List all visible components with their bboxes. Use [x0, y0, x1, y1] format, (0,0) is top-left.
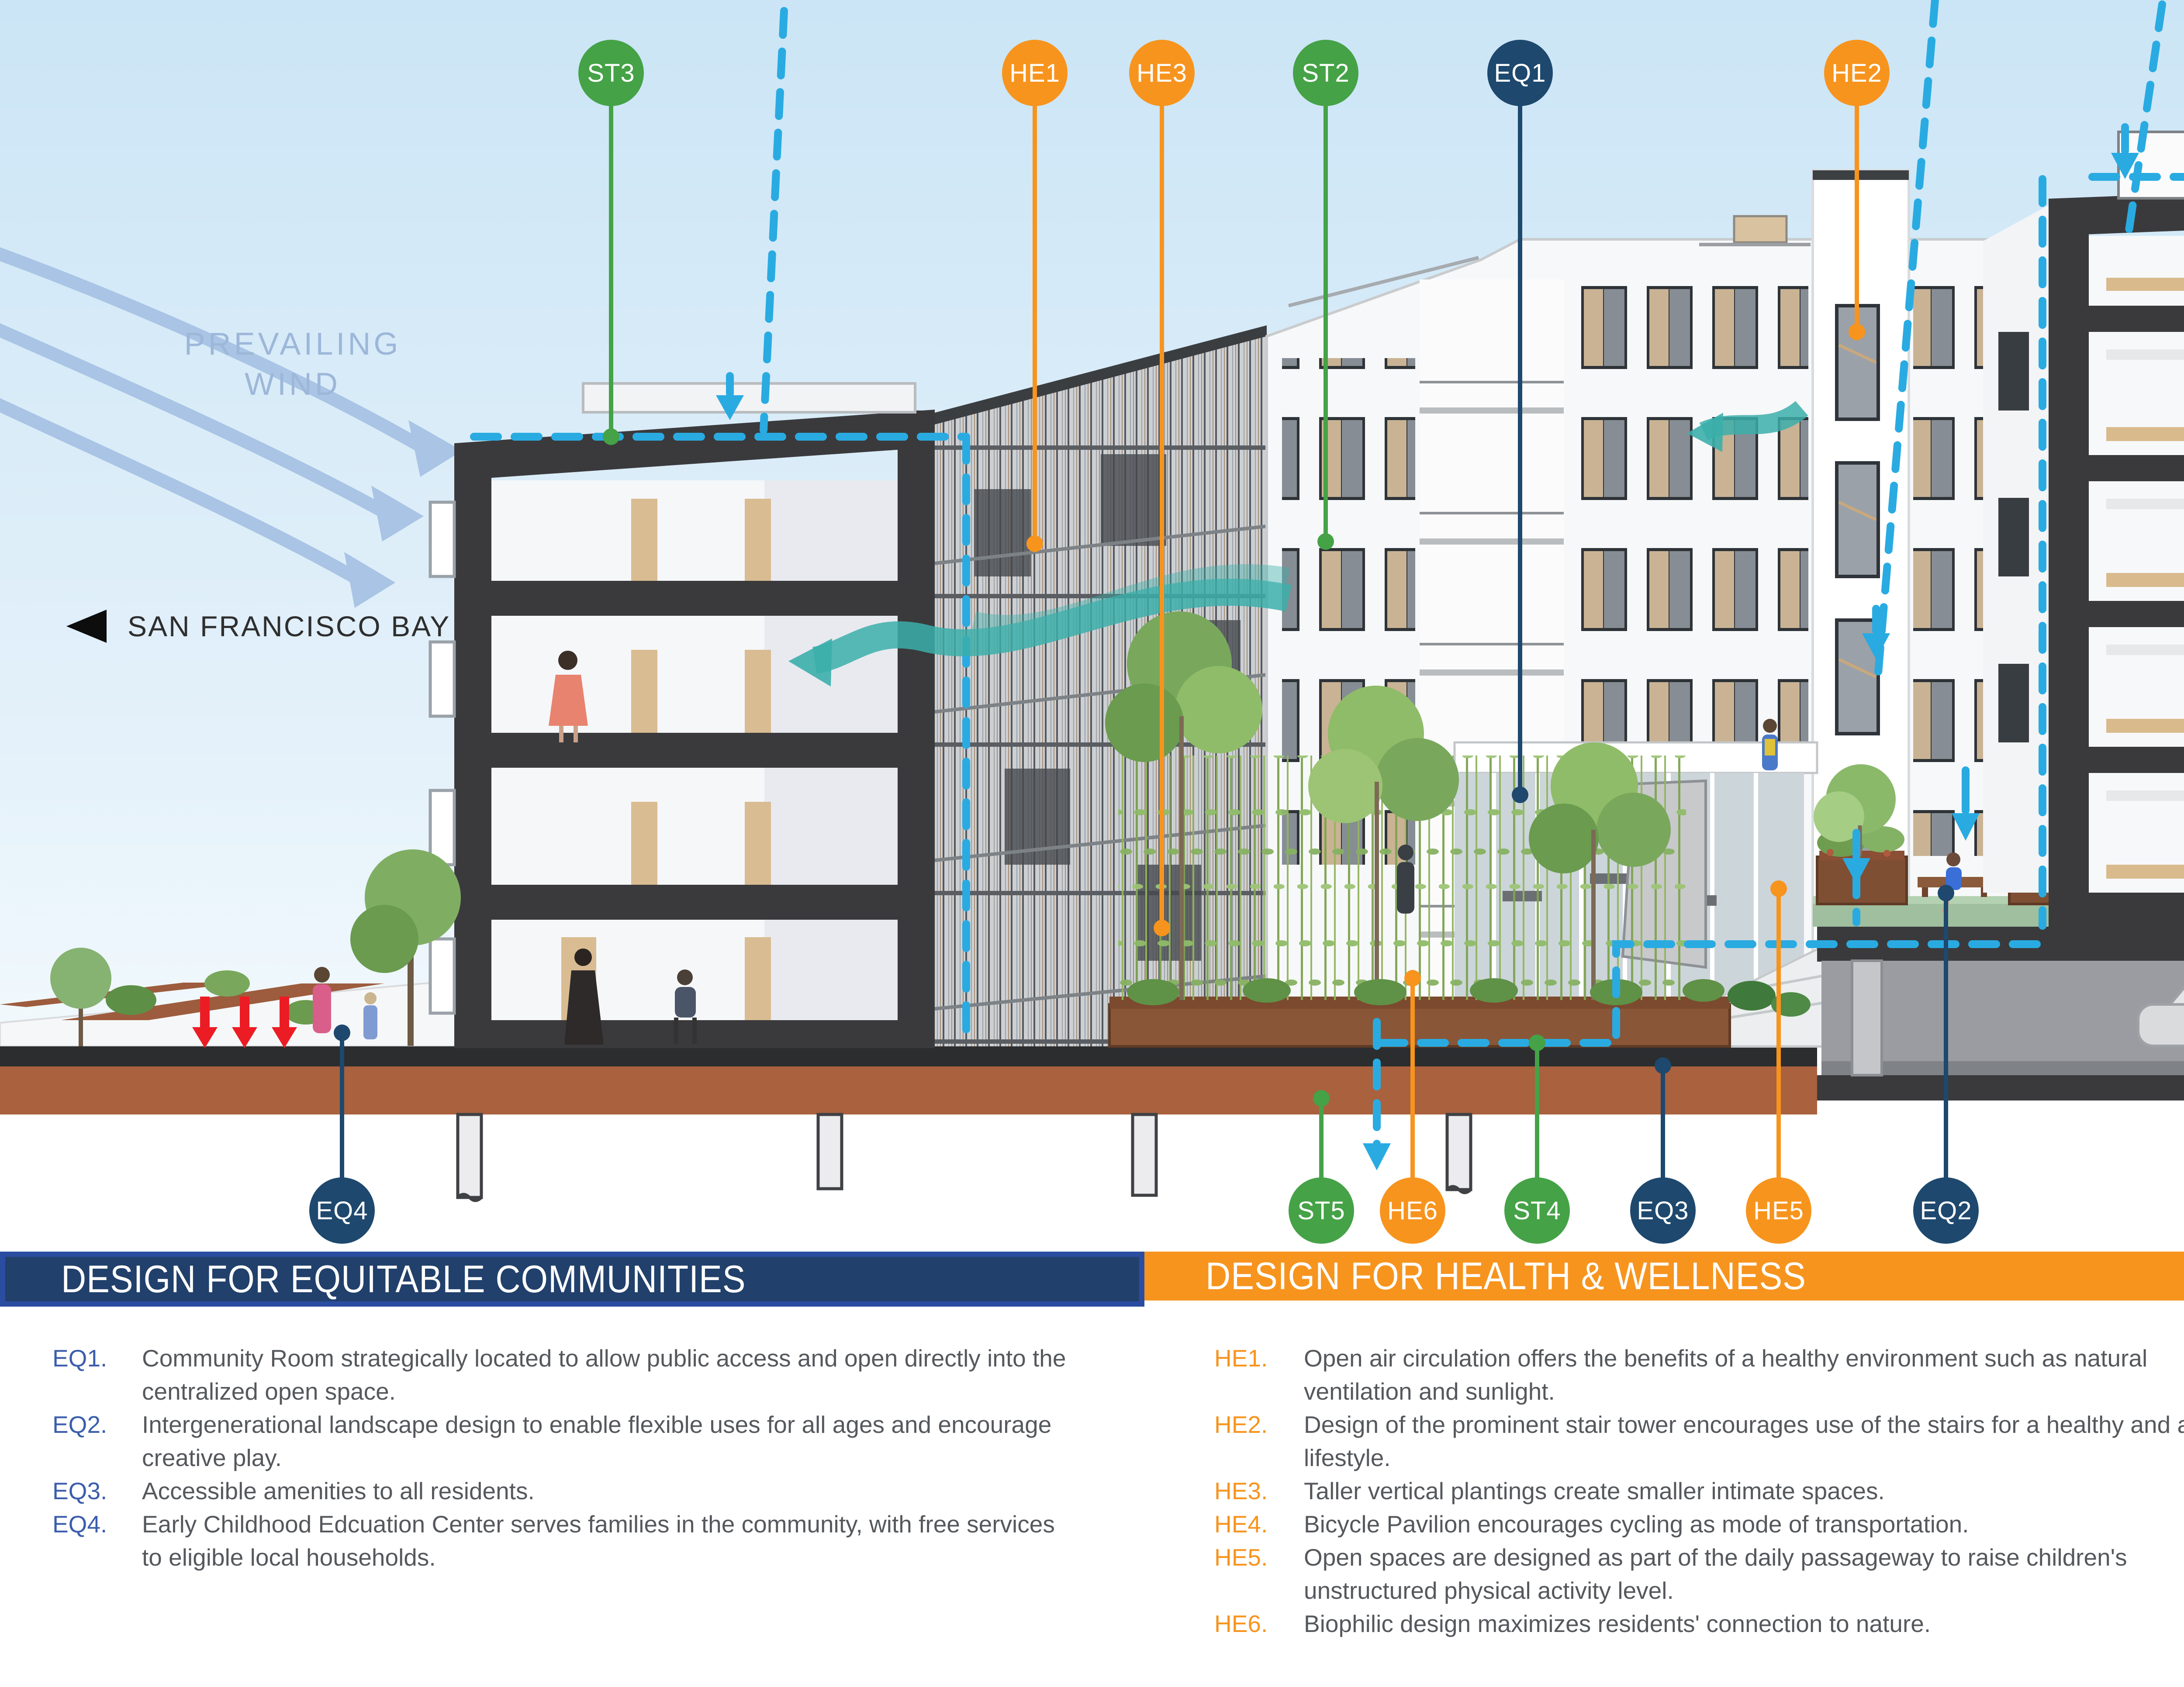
callout-badge-st4: ST4: [1504, 1177, 1570, 1244]
san-francisco-bay-label: SAN FRANCISCO BAY: [66, 610, 450, 643]
list-item-eq2: EQ2. Intergenerational landscape design …: [52, 1408, 1075, 1474]
list-item-he2: HE2. Design of the prominent stair tower…: [1214, 1408, 2184, 1474]
soil-band-left: [0, 1066, 1817, 1114]
roof-access-box: [1734, 216, 1787, 242]
section-title: DESIGN FOR HEALTH & WELLNESS: [1206, 1254, 1806, 1298]
list-item-he1: HE1. Open air circulation offers the ben…: [1214, 1342, 2184, 1408]
list-item-he3: HE3. Taller vertical plantings create sm…: [1214, 1474, 2184, 1508]
callout-badge-he3: HE3: [1129, 40, 1195, 106]
callout-badge-eq2: EQ2: [1913, 1177, 1979, 1244]
list-item-eq1: EQ1. Community Room strategically locate…: [52, 1342, 1075, 1408]
callout-badge-eq4: EQ4: [309, 1177, 375, 1244]
list-item-eq3: EQ3. Accessible amenities to all residen…: [52, 1474, 1075, 1508]
health-wellness-list: HE1. Open air circulation offers the ben…: [1214, 1342, 2184, 1640]
prevailing-wind-label: PREVAILING WIND: [144, 324, 441, 404]
callout-badge-eq1: EQ1: [1487, 40, 1553, 106]
garage-column: [1852, 961, 1882, 1075]
header-bar-health-wellness: DESIGN FOR HEALTH & WELLNESS: [1144, 1252, 2184, 1301]
apartment-floors: [2089, 236, 2184, 893]
equitable-communities-list: EQ1. Community Room strategically locate…: [52, 1342, 1075, 1574]
list-item-he4: HE4. Bicycle Pavilion encourages cycling…: [1214, 1508, 2184, 1541]
list-item-he5: HE5. Open spaces are designed as part of…: [1214, 1541, 2184, 1607]
callout-badge-eq3: EQ3: [1630, 1177, 1696, 1244]
parking-garage: [1817, 926, 2184, 1101]
callout-badge-he5: HE5: [1746, 1177, 1811, 1244]
stair-walker: [1762, 719, 1778, 770]
header-bar-equitable-communities: DESIGN FOR EQUITABLE COMMUNITIES: [0, 1252, 1144, 1307]
left-building: [430, 383, 935, 1048]
west-arrow-icon: [66, 610, 107, 643]
callout-badge-st3: ST3: [578, 40, 644, 106]
callout-badge-he2: HE2: [1824, 40, 1890, 106]
section-title: DESIGN FOR EQUITABLE COMMUNITIES: [61, 1257, 746, 1301]
basement-slab: [1817, 1075, 2184, 1101]
callout-badge-st2: ST2: [1293, 40, 1358, 106]
callout-badge-st5: ST5: [1289, 1177, 1354, 1244]
list-item-he6: HE6. Biophilic design maximizes resident…: [1214, 1607, 2184, 1640]
infographic-canvas: ST3 HE1 HE3 ST2 EQ1 HE2 EQ4 ST5 HE6 ST4 …: [0, 0, 2184, 1687]
courtyard-walker: [1397, 845, 1414, 914]
callout-badge-he1: HE1: [1002, 40, 1068, 106]
list-item-eq4: EQ4. Early Childhood Edcuation Center se…: [52, 1508, 1075, 1574]
callout-badge-he6: HE6: [1380, 1177, 1445, 1244]
left-roof-canopy: [583, 383, 915, 412]
